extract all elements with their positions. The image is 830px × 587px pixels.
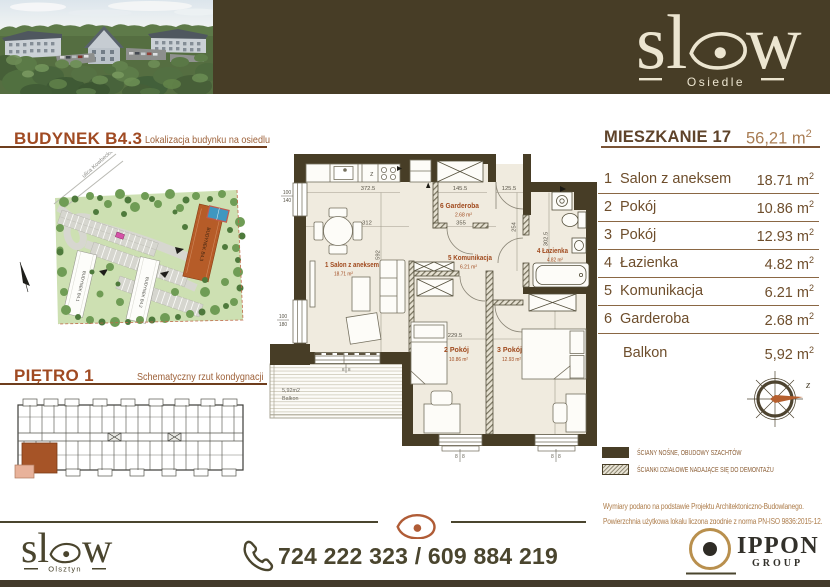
svg-text:w: w bbox=[82, 528, 113, 572]
svg-text:4.82 m²: 4.82 m² bbox=[547, 258, 563, 264]
svg-text:140: 140 bbox=[283, 198, 292, 204]
svg-text:100: 100 bbox=[283, 190, 292, 196]
svg-text:145.5: 145.5 bbox=[453, 186, 468, 192]
svg-text:229.5: 229.5 bbox=[448, 333, 463, 339]
svg-text:z: z bbox=[370, 171, 374, 178]
svg-text:372.5: 372.5 bbox=[361, 186, 376, 192]
svg-text:254: 254 bbox=[512, 221, 518, 231]
svg-text:5,92m2: 5,92m2 bbox=[282, 388, 300, 394]
svg-text:8: 8 bbox=[455, 454, 458, 460]
svg-text:8: 8 bbox=[551, 454, 554, 460]
svg-text:sl: sl bbox=[636, 0, 687, 85]
svg-text:Balkon: Balkon bbox=[282, 396, 298, 402]
svg-text:Osiedle: Osiedle bbox=[687, 75, 745, 89]
svg-text:Olsztyn: Olsztyn bbox=[48, 565, 81, 574]
svg-text:z: z bbox=[805, 379, 811, 391]
svg-text:592: 592 bbox=[376, 250, 382, 260]
svg-text:10.86 m²: 10.86 m² bbox=[449, 357, 468, 363]
svg-text:8: 8 bbox=[462, 454, 465, 460]
svg-text:302.5: 302.5 bbox=[544, 232, 550, 247]
svg-text:18.71 m²: 18.71 m² bbox=[334, 272, 353, 278]
svg-text:5 Komunikacja: 5 Komunikacja bbox=[448, 255, 492, 262]
svg-text:2.68 m²: 2.68 m² bbox=[455, 213, 472, 219]
svg-text:1 Salon z aneksem: 1 Salon z aneksem bbox=[325, 262, 379, 269]
svg-text:3 Pokój: 3 Pokój bbox=[497, 347, 522, 354]
svg-text:8: 8 bbox=[558, 454, 561, 460]
svg-text:12.93 m²: 12.93 m² bbox=[502, 357, 521, 363]
svg-text:w: w bbox=[746, 0, 802, 85]
svg-text:2 Pokój: 2 Pokój bbox=[444, 347, 469, 354]
svg-text:312: 312 bbox=[362, 221, 372, 227]
svg-text:125.5: 125.5 bbox=[502, 186, 517, 192]
svg-text:6.21 m²: 6.21 m² bbox=[460, 265, 477, 271]
svg-text:180: 180 bbox=[279, 322, 288, 328]
svg-text:355: 355 bbox=[456, 221, 466, 227]
svg-text:6 Garderoba: 6 Garderoba bbox=[440, 203, 479, 210]
svg-text:sl: sl bbox=[21, 528, 49, 572]
svg-text:100: 100 bbox=[279, 314, 288, 320]
svg-text:4 Łazienka: 4 Łazienka bbox=[537, 248, 568, 255]
